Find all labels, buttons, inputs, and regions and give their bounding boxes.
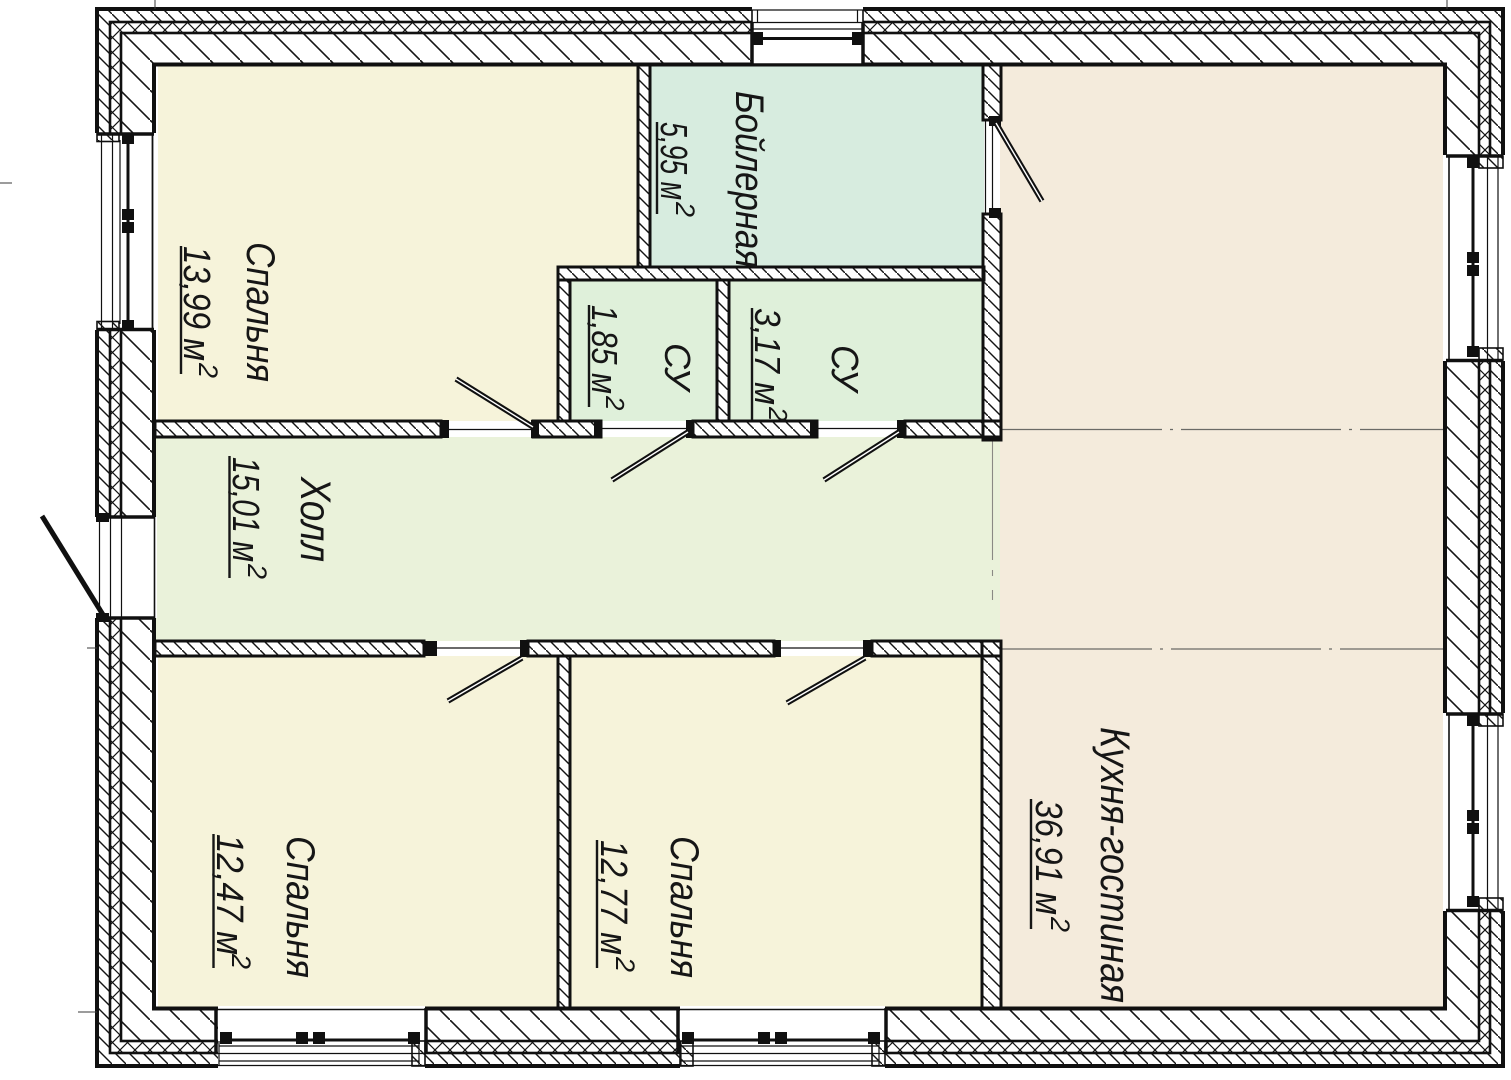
svg-text:2: 2 bbox=[1045, 916, 1075, 932]
svg-text:СУ: СУ bbox=[823, 345, 865, 394]
svg-text:СУ: СУ bbox=[657, 343, 698, 393]
svg-text:2: 2 bbox=[242, 563, 272, 579]
svg-text:2: 2 bbox=[763, 406, 793, 422]
svg-text:Спальня: Спальня bbox=[278, 836, 322, 978]
svg-text:12,77 м: 12,77 м bbox=[592, 840, 634, 955]
svg-text:Холл: Холл bbox=[291, 476, 339, 562]
svg-text:2: 2 bbox=[610, 956, 640, 972]
svg-text:2: 2 bbox=[600, 395, 630, 411]
svg-text:Спальня: Спальня bbox=[662, 836, 706, 978]
svg-text:Кухня-гостиная: Кухня-гостиная bbox=[1092, 727, 1139, 1003]
svg-text:2: 2 bbox=[226, 953, 256, 969]
svg-text:36,91 м: 36,91 м bbox=[1027, 800, 1069, 915]
svg-text:5,95 м: 5,95 м bbox=[652, 122, 694, 200]
svg-text:2: 2 bbox=[670, 201, 700, 217]
svg-text:Бойлерная: Бойлерная bbox=[727, 91, 771, 268]
svg-text:Спальня: Спальня bbox=[238, 242, 282, 382]
svg-text:2: 2 bbox=[193, 362, 223, 378]
